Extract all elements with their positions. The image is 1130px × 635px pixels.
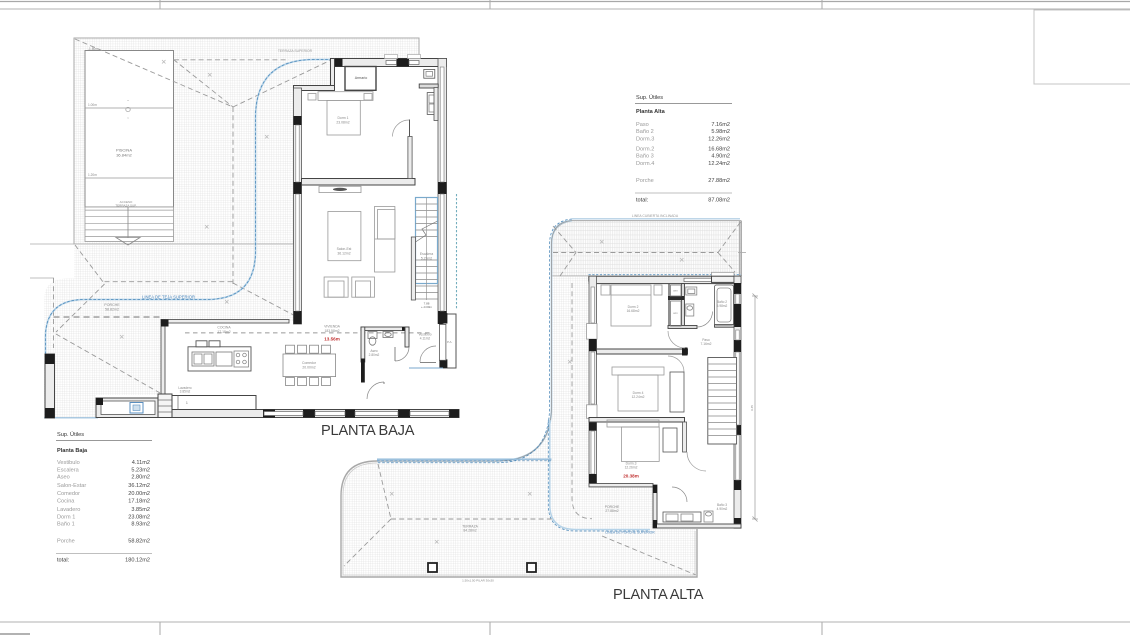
svg-text:183.58m2: 183.58m2 — [324, 329, 339, 333]
svg-text:Lavadero: Lavadero — [57, 507, 80, 513]
svg-text:Escalera: Escalera — [420, 252, 433, 256]
svg-text:36.84m2: 36.84m2 — [116, 153, 132, 158]
svg-text:Armario: Armario — [355, 76, 368, 80]
svg-text:20.38m: 20.38m — [623, 474, 639, 479]
svg-text:16.68m2: 16.68m2 — [627, 309, 640, 313]
svg-text:+-0.00m: +-0.00m — [421, 305, 433, 309]
svg-text:Dorm.4: Dorm.4 — [636, 161, 654, 167]
svg-text:1.50x1.50 PILAR 30x30: 1.50x1.50 PILAR 30x30 — [462, 579, 494, 583]
svg-text:Vestibulo: Vestibulo — [57, 460, 80, 466]
svg-text:87.08m2: 87.08m2 — [708, 198, 730, 204]
svg-text:Dorm 1: Dorm 1 — [57, 514, 75, 520]
svg-text:-1.80m: -1.80m — [88, 47, 98, 51]
svg-text:TERRAZA SUPERIOR: TERRAZA SUPERIOR — [278, 49, 313, 53]
svg-text:180.12m2: 180.12m2 — [125, 558, 150, 564]
svg-text:1.00m: 1.00m — [88, 103, 97, 107]
svg-text:Comedor: Comedor — [57, 491, 80, 497]
svg-text:Paso: Paso — [636, 122, 649, 128]
svg-text:4.11m2: 4.11m2 — [132, 460, 150, 466]
svg-text:58.82m2: 58.82m2 — [105, 308, 119, 312]
svg-text:Baño 1: Baño 1 — [57, 522, 75, 528]
svg-text:Salon-Estar: Salon-Estar — [57, 483, 86, 489]
svg-text:12.24m2: 12.24m2 — [708, 161, 730, 167]
svg-text:LINEA DE TEJA SUPERIOR: LINEA DE TEJA SUPERIOR — [142, 294, 195, 299]
svg-text:20.00m2: 20.00m2 — [128, 491, 150, 497]
svg-text:Sup. Útiles: Sup. Útiles — [57, 431, 84, 438]
svg-text:Planta Alta: Planta Alta — [636, 109, 666, 115]
svg-text:5.98m2: 5.98m2 — [717, 304, 728, 308]
svg-text:Baño 3: Baño 3 — [636, 154, 654, 160]
svg-text:12.26m2: 12.26m2 — [708, 136, 730, 142]
svg-text:1: 1 — [186, 401, 188, 405]
svg-text:27.88m2: 27.88m2 — [708, 178, 730, 184]
svg-text:Porche: Porche — [636, 178, 654, 184]
svg-text:≈: ≈ — [127, 99, 129, 103]
svg-text:2.80m2: 2.80m2 — [131, 475, 150, 481]
svg-text:Porche: Porche — [57, 539, 75, 545]
svg-text:Dorm.2: Dorm.2 — [636, 147, 654, 153]
svg-text:Comedor: Comedor — [302, 361, 317, 365]
svg-text:4.90m2: 4.90m2 — [711, 154, 730, 160]
svg-text:3.85m2: 3.85m2 — [131, 507, 150, 513]
svg-text:2.80m2: 2.80m2 — [369, 353, 380, 357]
svg-text:LINEA CUBIERTA INCLINADA: LINEA CUBIERTA INCLINADA — [632, 214, 679, 218]
svg-text:5.23m2: 5.23m2 — [421, 257, 432, 261]
svg-text:7.16m2: 7.16m2 — [701, 342, 712, 346]
svg-text:arm: arm — [673, 311, 677, 315]
svg-text:5.23m2: 5.23m2 — [131, 467, 150, 473]
svg-text:12.26m2: 12.26m2 — [625, 466, 638, 470]
svg-text:4.11m2: 4.11m2 — [420, 336, 431, 340]
svg-text:Planta Baja: Planta Baja — [57, 448, 88, 454]
svg-text:17.18m2: 17.18m2 — [128, 498, 150, 504]
svg-text:5.98m2: 5.98m2 — [711, 129, 730, 135]
svg-text:4.90m2: 4.90m2 — [717, 507, 728, 511]
svg-text:9.45: 9.45 — [750, 405, 754, 411]
svg-text:20.00m2: 20.00m2 — [302, 366, 315, 370]
svg-text:PLANTA ALTA: PLANTA ALTA — [613, 587, 704, 603]
svg-text:Sup. Útiles: Sup. Útiles — [636, 94, 663, 101]
svg-text:Aseo: Aseo — [57, 475, 70, 481]
svg-text:23.08m2: 23.08m2 — [128, 514, 150, 520]
svg-text:23.08m2: 23.08m2 — [336, 121, 349, 125]
svg-text:PLANTA BAJA: PLANTA BAJA — [321, 423, 415, 439]
svg-text:PORCHE: PORCHE — [104, 303, 120, 307]
svg-text:27.88m2: 27.88m2 — [605, 509, 618, 513]
svg-text:58.82m2: 58.82m2 — [128, 539, 150, 545]
svg-text:LINEA DE PORCHE SUPERIOR: LINEA DE PORCHE SUPERIOR — [605, 531, 655, 535]
svg-text:3.85m2: 3.85m2 — [180, 390, 191, 394]
svg-text:17.18m2: 17.18m2 — [217, 330, 230, 334]
svg-text:Salon-Est: Salon-Est — [337, 247, 352, 251]
svg-text:84.28m2: 84.28m2 — [463, 529, 476, 533]
svg-text:total:: total: — [57, 558, 70, 564]
svg-text:13.56m: 13.56m — [324, 337, 340, 342]
svg-text:Dorm.3: Dorm.3 — [636, 136, 654, 142]
svg-text:1.20m: 1.20m — [88, 173, 97, 177]
svg-text:P.A.: P.A. — [447, 340, 452, 344]
svg-text:Baño 2: Baño 2 — [636, 129, 654, 135]
svg-text:Cocina: Cocina — [57, 498, 75, 504]
svg-text:≈: ≈ — [127, 116, 129, 120]
svg-text:total:: total: — [636, 198, 649, 204]
svg-text:12.24m2: 12.24m2 — [632, 395, 645, 399]
svg-text:Dorm 1: Dorm 1 — [337, 116, 348, 120]
svg-text:36.12m2: 36.12m2 — [337, 252, 350, 256]
svg-text:16.68m2: 16.68m2 — [708, 147, 730, 153]
svg-text:36.12m2: 36.12m2 — [128, 483, 150, 489]
svg-text:arm: arm — [673, 289, 677, 293]
svg-text:7.16m2: 7.16m2 — [711, 122, 730, 128]
svg-text:Escalera: Escalera — [57, 467, 80, 473]
svg-text:8.93m2: 8.93m2 — [131, 522, 150, 528]
